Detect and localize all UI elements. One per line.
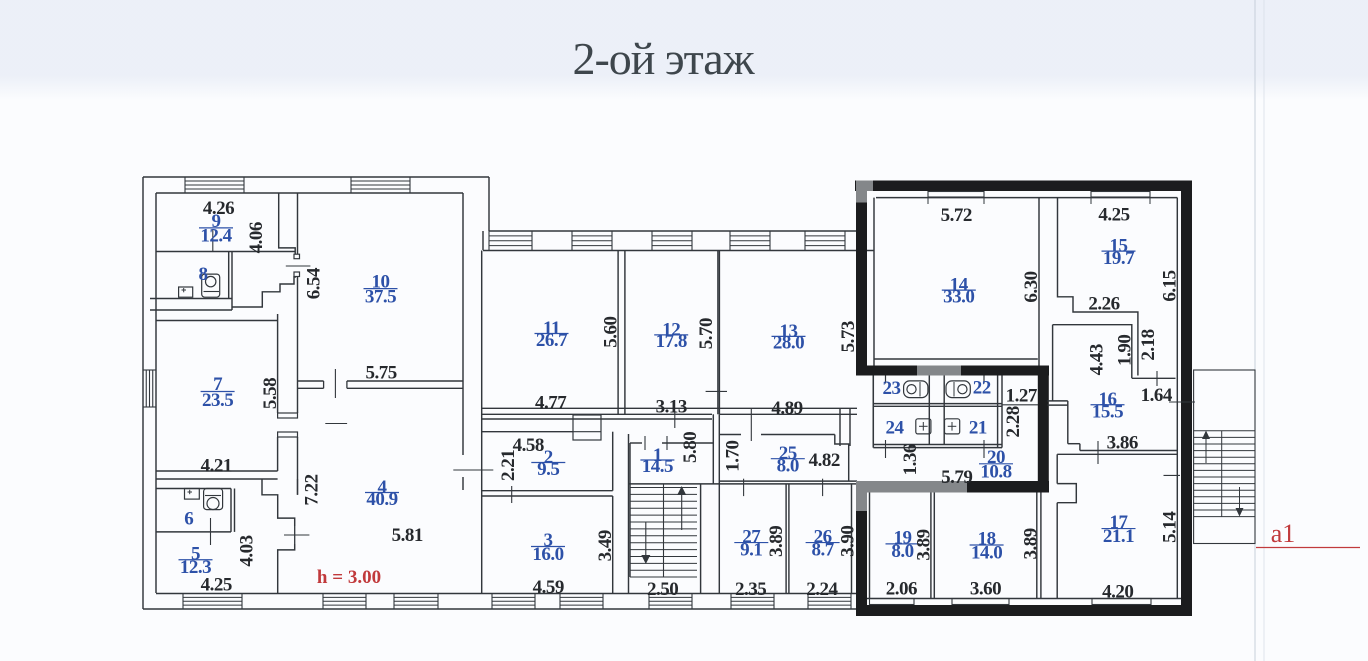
svg-text:2.28: 2.28 xyxy=(1003,406,1024,437)
svg-text:5.80: 5.80 xyxy=(680,432,701,463)
svg-text:12.4: 12.4 xyxy=(200,226,232,247)
svg-text:4.26: 4.26 xyxy=(203,198,234,219)
svg-text:23.5: 23.5 xyxy=(202,390,233,411)
svg-text:8.0: 8.0 xyxy=(891,541,913,562)
svg-text:1.90: 1.90 xyxy=(1115,335,1136,366)
svg-text:5.58: 5.58 xyxy=(260,378,281,409)
svg-text:2.26: 2.26 xyxy=(1088,294,1119,315)
svg-text:2.21: 2.21 xyxy=(498,450,519,481)
svg-text:4.77: 4.77 xyxy=(535,393,567,414)
svg-text:5.72: 5.72 xyxy=(941,205,972,226)
svg-text:8: 8 xyxy=(199,264,208,285)
svg-text:1.36: 1.36 xyxy=(900,444,921,475)
svg-text:19.7: 19.7 xyxy=(1103,248,1135,269)
svg-text:5.14: 5.14 xyxy=(1159,511,1180,543)
svg-text:4.20: 4.20 xyxy=(1102,582,1133,603)
svg-text:3.89: 3.89 xyxy=(913,529,934,560)
svg-text:9.1: 9.1 xyxy=(740,540,762,561)
svg-text:3.49: 3.49 xyxy=(595,530,616,561)
svg-text:14.5: 14.5 xyxy=(642,456,673,477)
svg-text:37.5: 37.5 xyxy=(365,287,396,308)
svg-text:8.7: 8.7 xyxy=(811,540,834,561)
svg-text:1.70: 1.70 xyxy=(723,440,744,471)
svg-text:2-ой этаж: 2-ой этаж xyxy=(572,33,754,84)
svg-text:3.13: 3.13 xyxy=(656,396,687,417)
svg-text:2.24: 2.24 xyxy=(806,579,838,600)
svg-text:6: 6 xyxy=(184,509,193,530)
svg-text:21: 21 xyxy=(969,417,987,438)
svg-text:24: 24 xyxy=(886,417,905,438)
svg-text:16.0: 16.0 xyxy=(532,544,563,565)
svg-text:3.89: 3.89 xyxy=(1020,528,1041,559)
svg-text:7.22: 7.22 xyxy=(302,474,323,505)
svg-text:6.15: 6.15 xyxy=(1160,270,1181,301)
svg-text:4.21: 4.21 xyxy=(201,456,232,477)
svg-text:5.73: 5.73 xyxy=(838,321,859,352)
svg-text:6.54: 6.54 xyxy=(303,267,324,299)
svg-text:9.5: 9.5 xyxy=(537,459,559,480)
svg-text:5.70: 5.70 xyxy=(696,318,717,349)
svg-text:2.35: 2.35 xyxy=(735,579,766,600)
svg-text:3.90: 3.90 xyxy=(837,526,858,557)
svg-text:2.06: 2.06 xyxy=(886,579,917,600)
svg-text:3.89: 3.89 xyxy=(766,526,787,557)
svg-text:14.0: 14.0 xyxy=(971,542,1002,563)
svg-text:5.75: 5.75 xyxy=(365,362,396,383)
svg-text:10.8: 10.8 xyxy=(980,461,1011,482)
svg-text:5.60: 5.60 xyxy=(600,316,621,347)
svg-text:4.82: 4.82 xyxy=(809,450,840,471)
svg-text:3.86: 3.86 xyxy=(1107,433,1138,454)
svg-text:17.8: 17.8 xyxy=(656,331,687,352)
svg-text:26.7: 26.7 xyxy=(536,330,568,351)
svg-text:28.0: 28.0 xyxy=(773,333,804,354)
svg-text:4.06: 4.06 xyxy=(246,222,267,253)
svg-text:8.0: 8.0 xyxy=(777,455,799,476)
svg-text:4.03: 4.03 xyxy=(237,535,258,566)
svg-text:4.25: 4.25 xyxy=(201,574,232,595)
svg-text:21.1: 21.1 xyxy=(1103,526,1134,547)
svg-text:2.18: 2.18 xyxy=(1138,329,1159,360)
svg-text:4.89: 4.89 xyxy=(771,398,802,419)
svg-text:6.30: 6.30 xyxy=(1021,271,1042,302)
svg-text:15.5: 15.5 xyxy=(1092,402,1123,423)
svg-text:5.81: 5.81 xyxy=(392,525,423,546)
svg-text:22: 22 xyxy=(973,378,991,399)
svg-text:1.64: 1.64 xyxy=(1141,385,1173,406)
svg-text:23: 23 xyxy=(883,378,901,399)
svg-text:1.27: 1.27 xyxy=(1006,386,1038,407)
svg-text:а1: а1 xyxy=(1271,519,1296,548)
svg-text:33.0: 33.0 xyxy=(943,287,974,308)
svg-text:3.60: 3.60 xyxy=(970,579,1001,600)
svg-text:5.79: 5.79 xyxy=(941,467,972,488)
svg-text:4.59: 4.59 xyxy=(533,577,564,598)
svg-text:2.50: 2.50 xyxy=(647,579,678,600)
svg-text:4.43: 4.43 xyxy=(1087,344,1108,375)
svg-text:40.9: 40.9 xyxy=(366,489,397,510)
svg-text:h = 3.00: h = 3.00 xyxy=(317,567,381,588)
svg-text:4.25: 4.25 xyxy=(1098,204,1129,225)
